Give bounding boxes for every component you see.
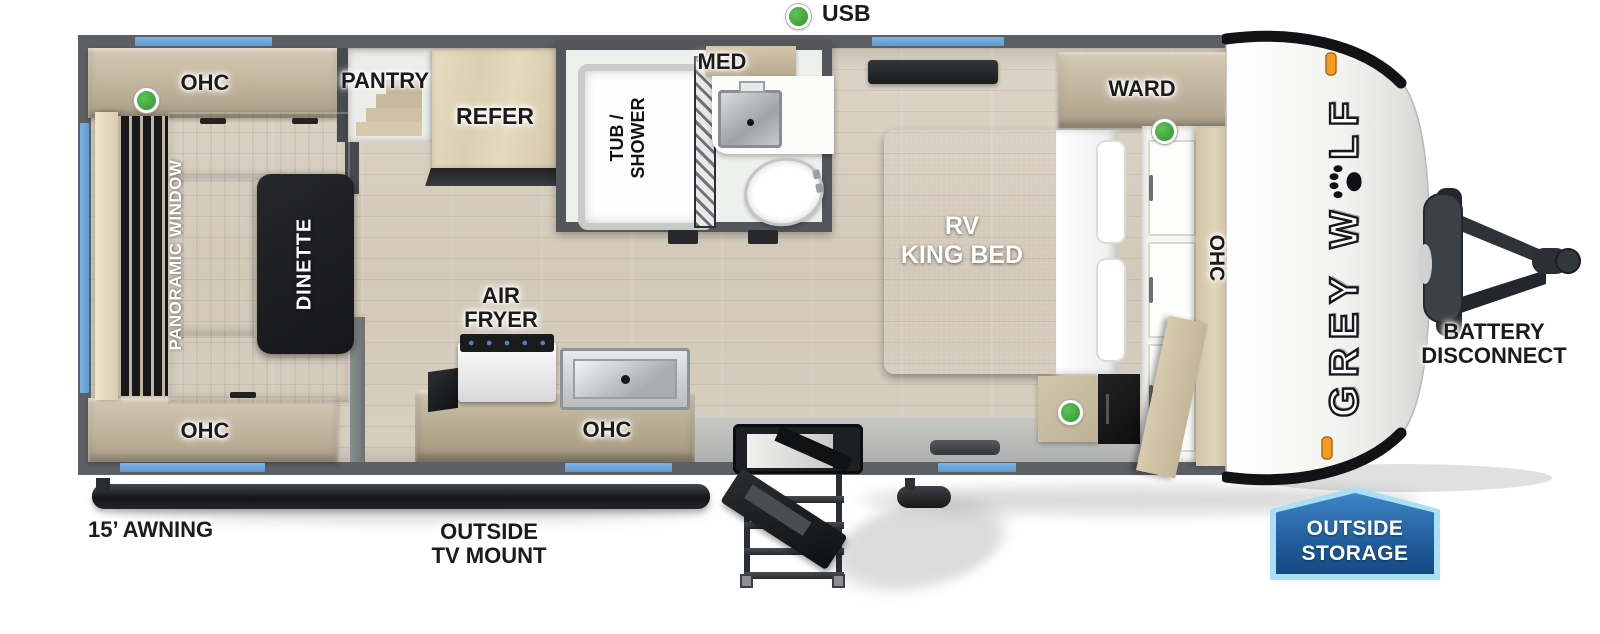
usb-indicator-dot — [1152, 119, 1177, 144]
pantry-interior — [348, 50, 432, 142]
step-foot — [832, 574, 845, 588]
cabinet-hinge — [292, 118, 318, 124]
med-label: MED — [698, 50, 747, 73]
ohc-rear-top-label: OHC — [181, 71, 230, 94]
bathroom-door-jamb — [668, 230, 698, 244]
window-rear-wall — [80, 123, 89, 393]
outside-storage-badge-face: OUTSIDE STORAGE — [1276, 493, 1434, 574]
king-bed-line2: KING BED — [901, 241, 1023, 270]
air-fryer-label-line1: AIR — [482, 284, 520, 307]
refrigerator-base-shadow — [425, 168, 565, 186]
battery-label-line1: BATTERY — [1443, 320, 1544, 343]
tv-mount-label-line1: OUTSIDE — [440, 520, 538, 543]
step-tread — [744, 572, 844, 579]
storage-label-line1: OUTSIDE — [1307, 516, 1404, 541]
window-top-bedroom — [872, 37, 1004, 46]
bedroom-shelf — [868, 60, 998, 84]
usb-indicator-dot — [134, 88, 159, 113]
floorplan-canvas: GREY WLF USB OHC OHC PANTRY REFER PANORA… — [0, 0, 1600, 634]
cabinet-hinge — [200, 118, 226, 124]
dinette-bench-top — [168, 112, 350, 182]
toilet — [738, 150, 830, 233]
pillow — [1096, 258, 1126, 362]
window-bottom-rear — [120, 463, 265, 472]
awning-tube — [92, 484, 710, 509]
panoramic-window-blinds — [118, 116, 168, 396]
ohc-kitchen-label: OHC — [583, 418, 632, 441]
tub-shower-line2: SHOWER — [628, 98, 649, 179]
pantry-label: PANTRY — [341, 69, 429, 92]
air-fryer-label-line2: FRYER — [464, 308, 538, 331]
window-top-rear — [135, 37, 272, 46]
kitchen-sink-drain — [621, 375, 630, 384]
bathroom-faucet — [739, 81, 765, 93]
bathroom-sink-drain — [747, 119, 754, 126]
tub-shower-line1: TUB / — [607, 98, 628, 179]
marker-light-top — [1326, 53, 1336, 75]
tv-mount-label-line2: TV MOUNT — [432, 544, 547, 567]
battery-label-line2: DISCONNECT — [1421, 344, 1566, 367]
window-bottom-kitchen — [565, 463, 672, 472]
awning-bracket — [96, 478, 110, 490]
refer-label: REFER — [456, 104, 534, 128]
stove — [458, 342, 556, 402]
grab-handle-bracket — [905, 478, 915, 490]
pantry-shelf — [356, 122, 422, 136]
ward-label: WARD — [1108, 77, 1175, 100]
usb-indicator-dot — [786, 4, 811, 29]
stove-burners — [460, 334, 554, 352]
awning-label: 15’ AWNING — [88, 518, 213, 541]
bedroom-black-cabinet — [1098, 374, 1140, 444]
usb-indicator-dot — [1058, 400, 1083, 425]
bathroom — [556, 40, 832, 232]
king-bed-line1: RV — [901, 212, 1023, 241]
kitchen-sink — [560, 348, 690, 410]
bathroom-sink — [718, 90, 782, 148]
brand-text-prefix: GREY W — [1323, 202, 1368, 418]
panoramic-window-frame — [95, 112, 118, 400]
bathroom-door-jamb — [748, 230, 778, 244]
ohc-bedroom-label: OHC — [1205, 235, 1227, 282]
usb-label: USB — [822, 1, 871, 25]
tv-mount-bracket — [428, 368, 458, 412]
entry-doorway — [733, 424, 863, 474]
window-bottom-bedroom — [938, 463, 1016, 472]
step-foot — [740, 574, 753, 588]
king-bed-label: RV KING BED — [901, 212, 1023, 270]
hitch-assembly — [1418, 188, 1580, 336]
panoramic-window-label: PANORAMIC WINDOW — [166, 160, 186, 351]
brand-text-suffix: LF — [1323, 93, 1368, 160]
front-cap — [1222, 26, 1588, 500]
wolf-paw-icon — [1328, 166, 1362, 200]
dinette-label: DINETTE — [294, 218, 317, 311]
pantry-shelf — [366, 108, 422, 122]
cabinet-hinge — [230, 392, 256, 398]
wardrobe-drawer — [1148, 140, 1196, 236]
pantry-shelf — [376, 94, 422, 108]
marker-light-bottom — [1322, 437, 1332, 459]
ohc-rear-bottom-label: OHC — [181, 419, 230, 442]
floor-vent — [930, 440, 1000, 455]
storage-label-line2: STORAGE — [1302, 541, 1409, 566]
pillow — [1096, 140, 1126, 244]
tub-shower-label: TUB / SHOWER — [607, 98, 649, 179]
brand-logo: GREY WLF — [1323, 93, 1368, 417]
